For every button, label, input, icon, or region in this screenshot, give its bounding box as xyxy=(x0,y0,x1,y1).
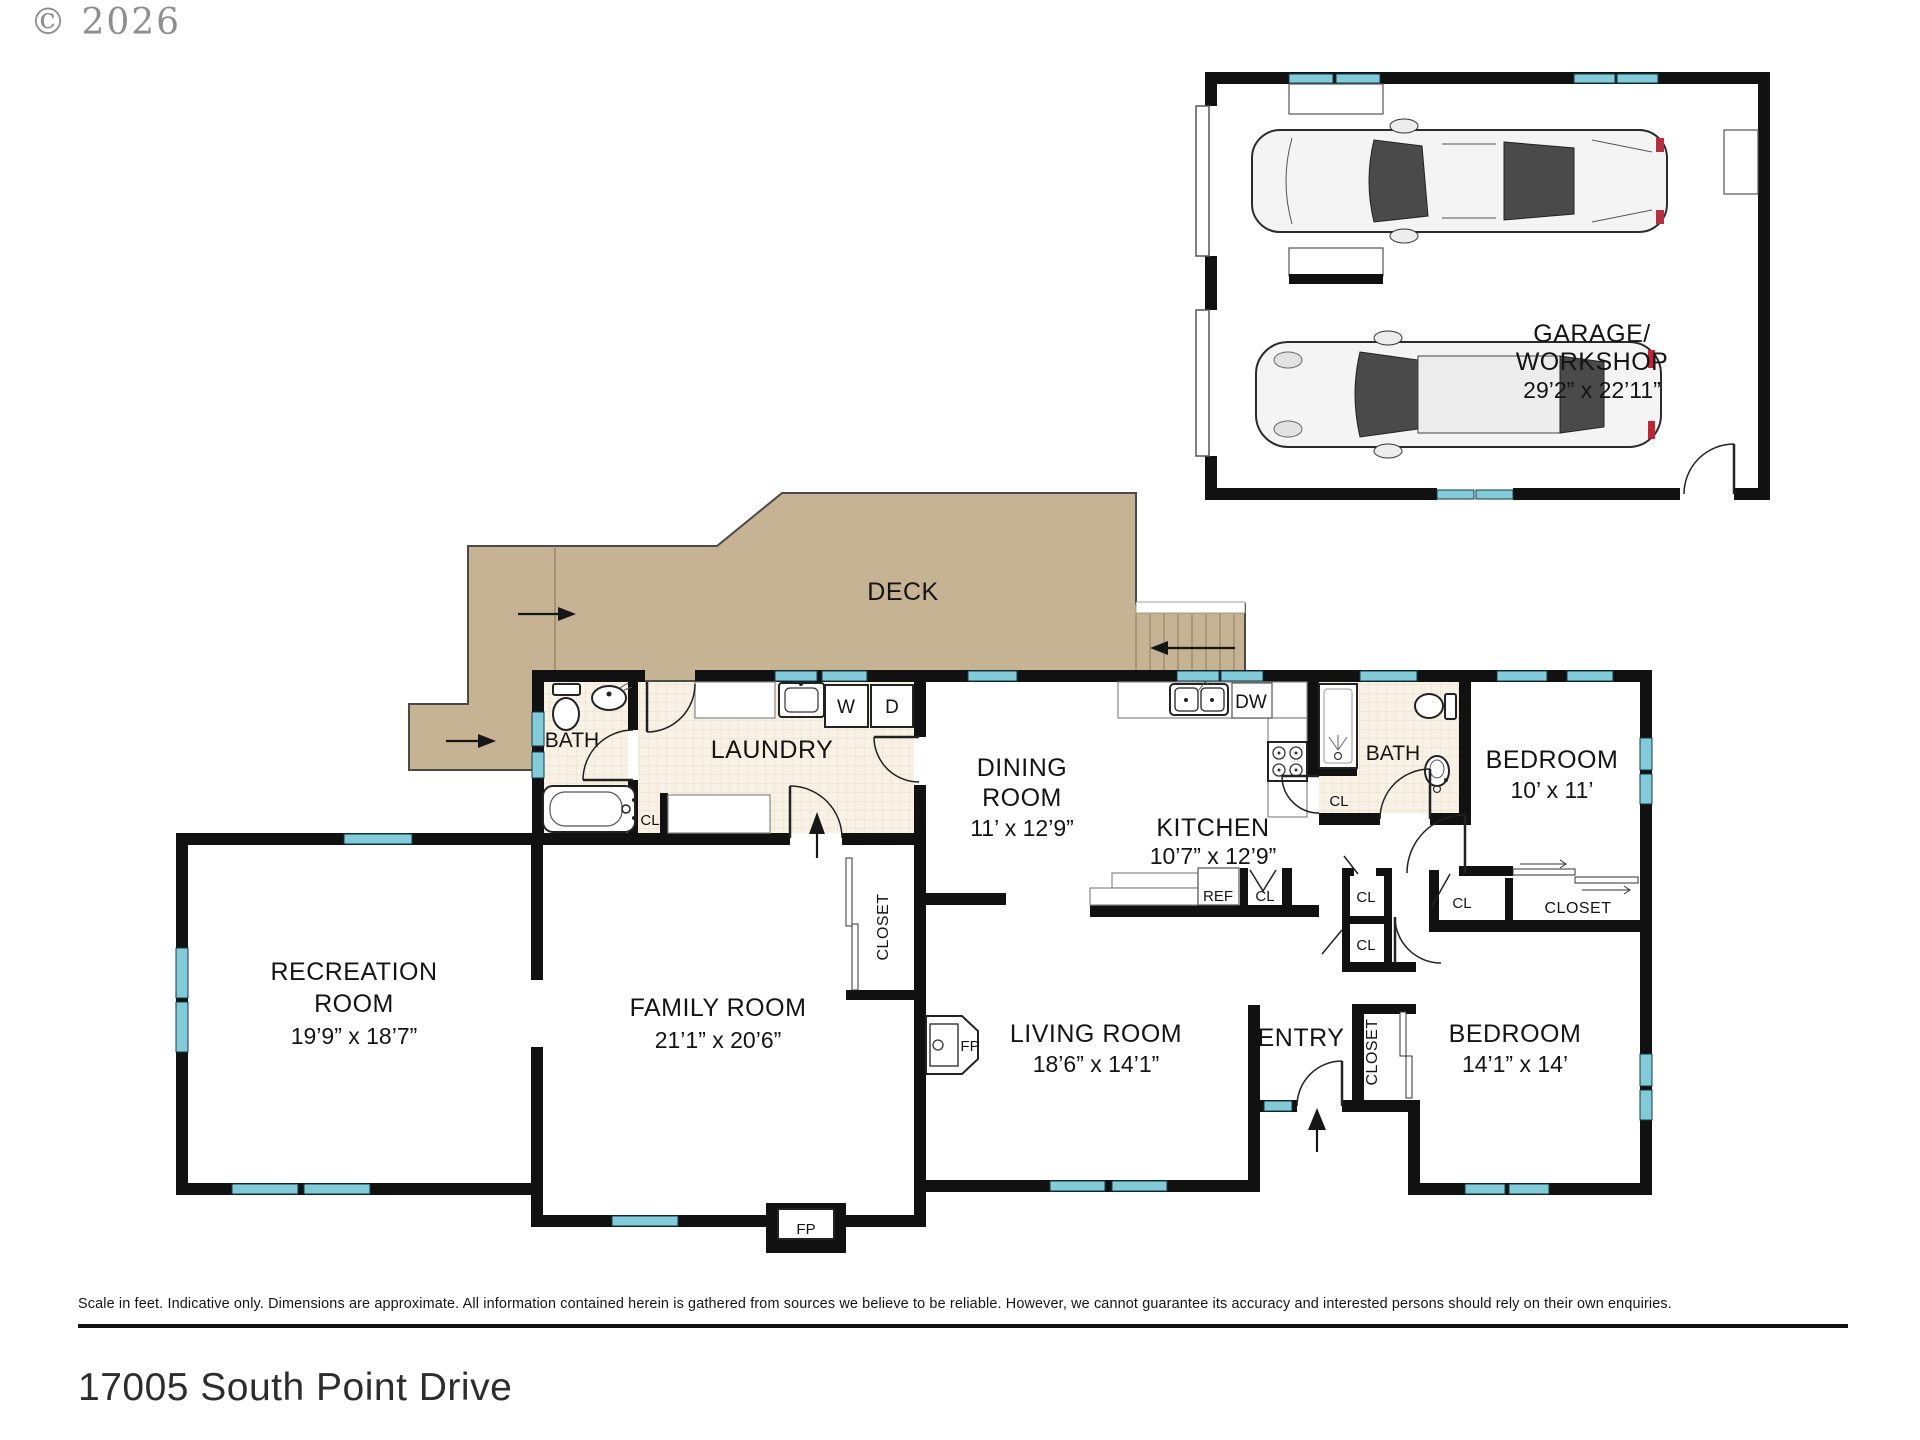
workbench xyxy=(1289,84,1383,114)
garage-window xyxy=(1574,74,1615,83)
toilet-icon xyxy=(553,698,579,730)
closet-sliding-door xyxy=(846,858,852,926)
floor-plan-page: © 2026 xyxy=(0,0,1920,1440)
workbench xyxy=(1724,130,1758,194)
fireplace-label: FP xyxy=(796,1221,815,1238)
kitchen-label: KITCHEN xyxy=(1156,814,1269,842)
closet-cl-label: CL xyxy=(1452,895,1471,912)
bedroom-small-dims: 10’ x 11’ xyxy=(1510,777,1593,803)
floor-plan-drawing: DECK xyxy=(0,0,1920,1440)
laundry-label: LAUNDRY xyxy=(711,736,834,764)
deck-stairs-landing xyxy=(1136,602,1245,613)
kitchen-shelf-step xyxy=(1112,873,1198,888)
toilet-tank xyxy=(553,684,580,695)
garage-label-line1: GARAGE/ xyxy=(1533,320,1650,348)
closet-cl-label: CL xyxy=(1255,888,1274,905)
closet-sliding-door xyxy=(1406,1056,1412,1098)
bath-main-label: BATH xyxy=(1366,742,1420,765)
closet-label: CLOSET xyxy=(875,893,892,960)
family-label: FAMILY ROOM xyxy=(630,994,807,1022)
main-floor: BATH CL W D LAUNDRY xyxy=(176,670,1652,1253)
deck-label: DECK xyxy=(867,578,938,606)
sink-icon xyxy=(592,686,626,710)
garage-door-lower xyxy=(1196,310,1209,456)
workbench xyxy=(1289,248,1383,276)
closet-sliding-door xyxy=(1400,1012,1406,1056)
recreation-dims: 19’9” x 18’7” xyxy=(291,1023,418,1049)
garage-workshop: GARAGE/ WORKSHOP 29’2” x 22’11” xyxy=(1196,60,1782,512)
closet-cl-label: CL xyxy=(1356,889,1375,906)
dishwasher-label: DW xyxy=(1235,692,1267,713)
closet-label: CLOSET xyxy=(1544,900,1611,917)
dining-label-line2: ROOM xyxy=(982,784,1062,812)
garage-window xyxy=(1437,490,1474,499)
property-address: 17005 South Point Drive xyxy=(78,1366,512,1410)
disclaimer-text: Scale in feet. Indicative only. Dimensio… xyxy=(78,1296,1848,1312)
bathtub-icon xyxy=(543,786,635,832)
family-room: FAMILY ROOM 21’1” x 20’6” FP CLOSET xyxy=(630,858,892,1239)
family-dims: 21’1” x 20’6” xyxy=(655,1027,782,1053)
laundry-cabinet xyxy=(668,795,770,833)
front-door-arc xyxy=(1297,1061,1342,1106)
dining-dims: 11’ x 12’9” xyxy=(970,815,1074,841)
fridge-label: REF xyxy=(1203,888,1233,905)
kitchen: DW REF CL KITCHEN 10’7” x 12’9” xyxy=(1090,682,1319,905)
closet-sliding-door xyxy=(1513,869,1575,875)
dining-room: DINING ROOM 11’ x 12’9” xyxy=(970,754,1074,841)
entry: ENTRY CLOSET xyxy=(1258,1012,1412,1152)
fireplace-living: FP xyxy=(926,1016,980,1074)
bedroom-small-label: BEDROOM xyxy=(1486,746,1619,774)
car-sports xyxy=(1252,119,1667,243)
closet-sliding-door xyxy=(1575,877,1638,883)
living-dims: 18’6” x 14’1” xyxy=(1033,1051,1160,1077)
garage-window xyxy=(1336,74,1380,83)
closet-label: CLOSET xyxy=(1364,1018,1381,1085)
living-label: LIVING ROOM xyxy=(1010,1020,1182,1048)
closet-cl-label: CL xyxy=(640,812,659,829)
divider-line xyxy=(78,1324,1848,1328)
recreation-label-line1: RECREATION xyxy=(270,958,437,986)
shower-icon xyxy=(1319,684,1357,768)
garage-label-line2: WORKSHOP xyxy=(1516,348,1669,376)
kitchen-dims: 10’7” x 12’9” xyxy=(1150,843,1277,869)
fireplace-label: FP xyxy=(960,1038,979,1055)
entry-arrow xyxy=(1308,1108,1326,1152)
garage-window xyxy=(1289,74,1333,83)
bath-upper-label: BATH xyxy=(545,729,599,752)
kitchen-shelf-step xyxy=(1090,888,1198,905)
garage-dims: 29’2” x 22’11” xyxy=(1523,377,1661,403)
garage-door-upper xyxy=(1196,106,1209,256)
dining-label-line1: DINING xyxy=(977,754,1068,782)
garage-window xyxy=(1617,74,1658,83)
bedroom-large: BEDROOM 14’1” x 14’ xyxy=(1449,1020,1582,1077)
closet-sliding-door xyxy=(852,924,858,990)
bedroom-large-dims: 14’1” x 14’ xyxy=(1462,1051,1568,1077)
closet-cl-label: CL xyxy=(1356,937,1375,954)
toilet-icon xyxy=(1415,694,1443,718)
closet-bifold xyxy=(1322,930,1342,954)
toilet-tank xyxy=(1445,694,1456,719)
closet-cl-label: CL xyxy=(1329,793,1348,810)
living-room: LIVING ROOM 18’6” x 14’1” FP xyxy=(926,1016,1182,1077)
recreation-label-line2: ROOM xyxy=(314,990,394,1018)
laundry-counter xyxy=(695,682,775,718)
recreation-room: RECREATION ROOM 19’9” x 18’7” xyxy=(270,958,437,1049)
washer-label: W xyxy=(837,697,855,718)
garage-window xyxy=(1476,490,1513,499)
dryer-label: D xyxy=(885,697,899,718)
workbench-edge xyxy=(1289,274,1383,284)
entry-label: ENTRY xyxy=(1258,1024,1345,1052)
bedroom-large-label: BEDROOM xyxy=(1449,1020,1582,1048)
